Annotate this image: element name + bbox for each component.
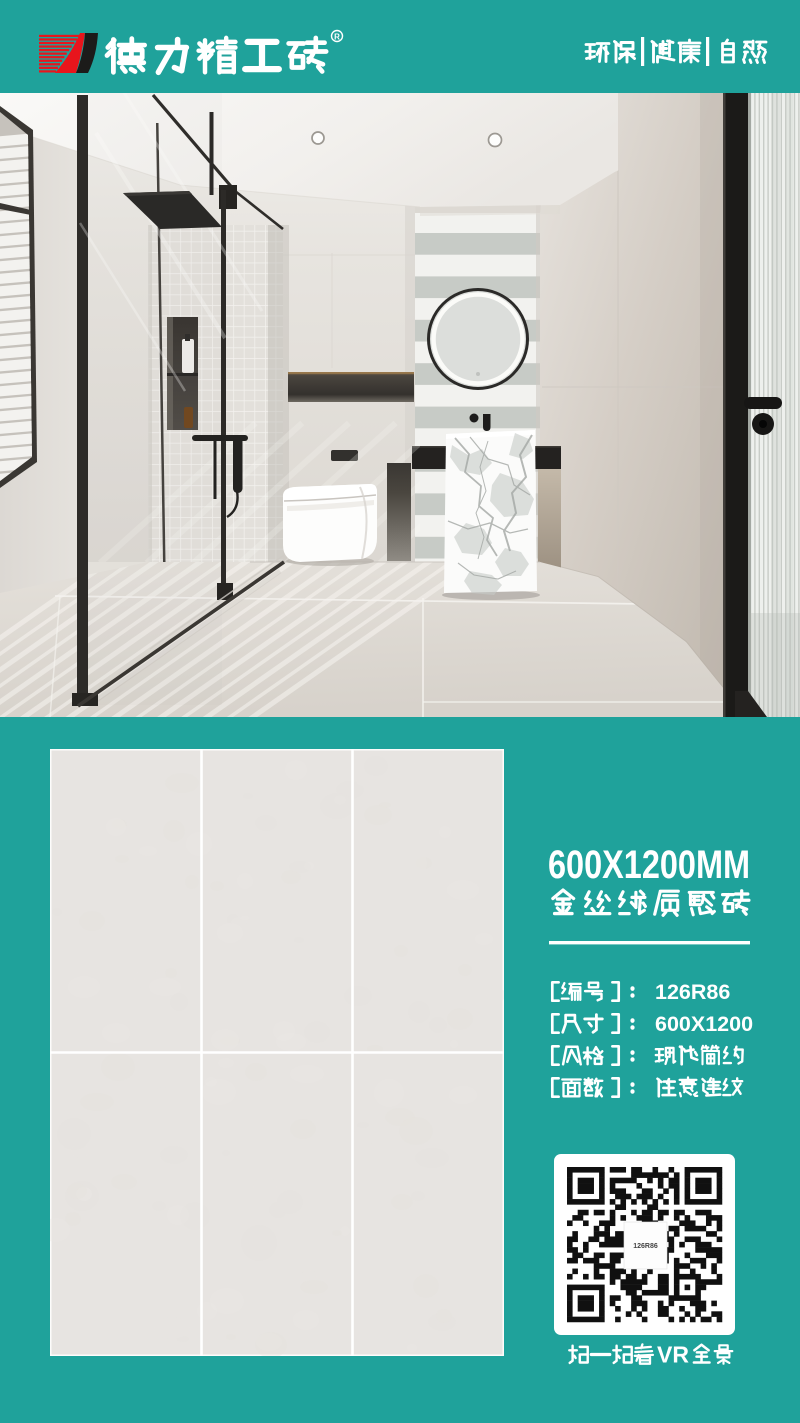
svg-text:126R86: 126R86 [633, 1243, 658, 1250]
svg-text:600X1200: 600X1200 [655, 1012, 753, 1036]
svg-text:600X1200MM: 600X1200MM [548, 843, 750, 887]
svg-text:VR: VR [657, 1342, 689, 1368]
svg-text:126R86: 126R86 [655, 980, 730, 1004]
svg-text:R: R [334, 33, 340, 42]
